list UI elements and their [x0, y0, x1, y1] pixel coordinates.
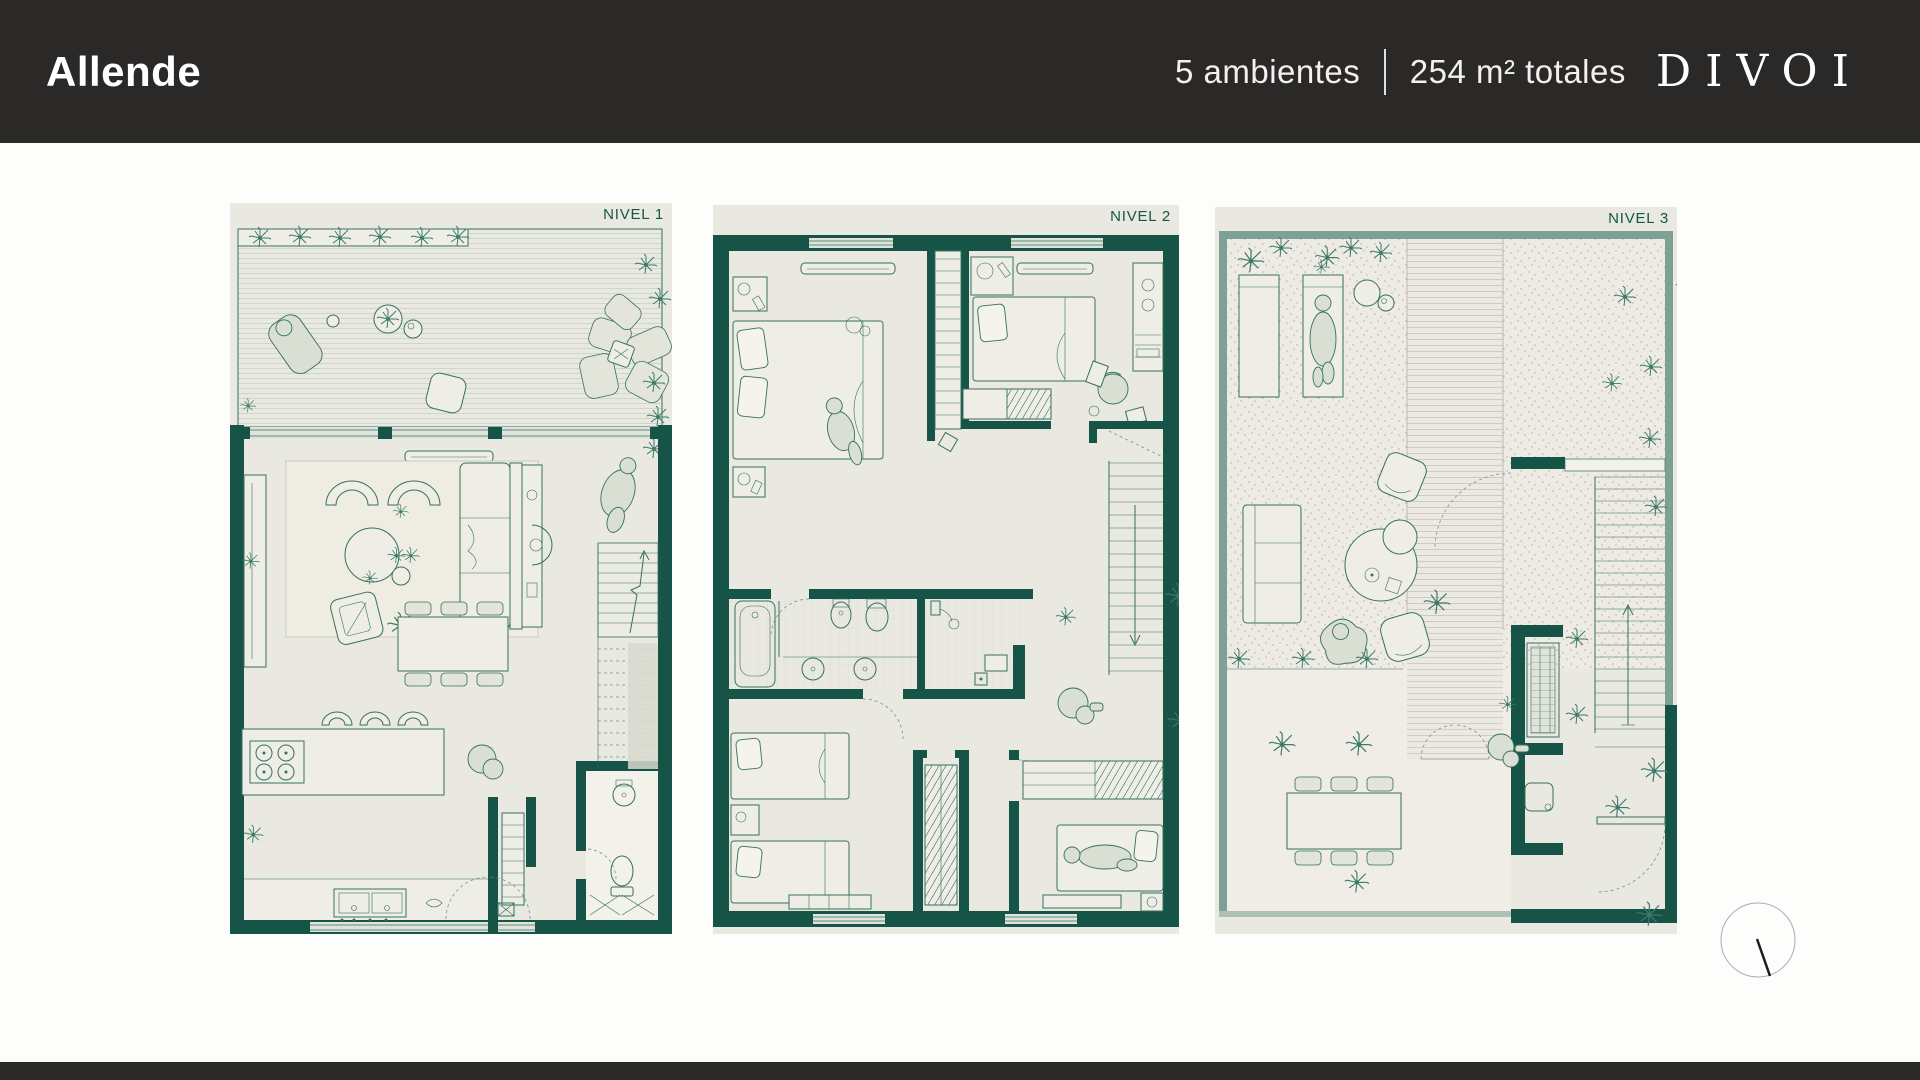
bedroom-3 [731, 733, 871, 909]
plan-level-label-1: NIVEL 1 [603, 206, 664, 223]
bedroom-2 [961, 257, 1095, 429]
header-bar: Allende 5 ambientes 254 m² totales DIVOI [0, 0, 1920, 143]
desk-area [1086, 263, 1163, 443]
footer-bar [0, 1062, 1920, 1080]
terrace-door [1597, 817, 1665, 892]
page-title: Allende [46, 48, 201, 96]
bean-bag [468, 745, 503, 779]
person-figure-hall [1058, 688, 1103, 724]
total-area-label: 254 m² totales [1410, 53, 1626, 91]
plan-level-label-3: NIVEL 3 [1608, 210, 1669, 227]
rooms-count-label: 5 ambientes [1175, 53, 1360, 91]
header-stats: 5 ambientes 254 m² totales DIVOI [1175, 46, 1863, 97]
terrace [238, 226, 672, 458]
window-band [238, 427, 662, 439]
floor-plan-nivel-3: NIVEL 3 [1215, 207, 1677, 934]
floor-plan-drawing-nivel-1 [230, 203, 672, 934]
slide: Allende 5 ambientes 254 m² totales DIVOI… [0, 0, 1920, 1080]
floor-plan-drawing-nivel-2 [713, 205, 1179, 934]
plan-level-label-2: NIVEL 2 [1110, 208, 1171, 225]
bedroom-4 [1009, 750, 1163, 911]
bathroom-shower [925, 589, 1033, 699]
walk-in-closet [913, 750, 969, 911]
brand-logo: DIVOI [1656, 46, 1863, 97]
floor-plan-nivel-2: NIVEL 2 [713, 205, 1179, 934]
header-divider [1384, 49, 1386, 95]
floor-plan-nivel-1: NIVEL 1 [230, 203, 672, 934]
person-figure [590, 453, 646, 535]
bathroom [586, 771, 658, 920]
bathroom-main [729, 589, 925, 739]
bedroom-1 [733, 263, 895, 497]
floor-plan-drawing-nivel-3 [1215, 207, 1677, 934]
north-indicator [1720, 902, 1796, 978]
staircase [598, 543, 658, 769]
staircase [1056, 431, 1179, 732]
